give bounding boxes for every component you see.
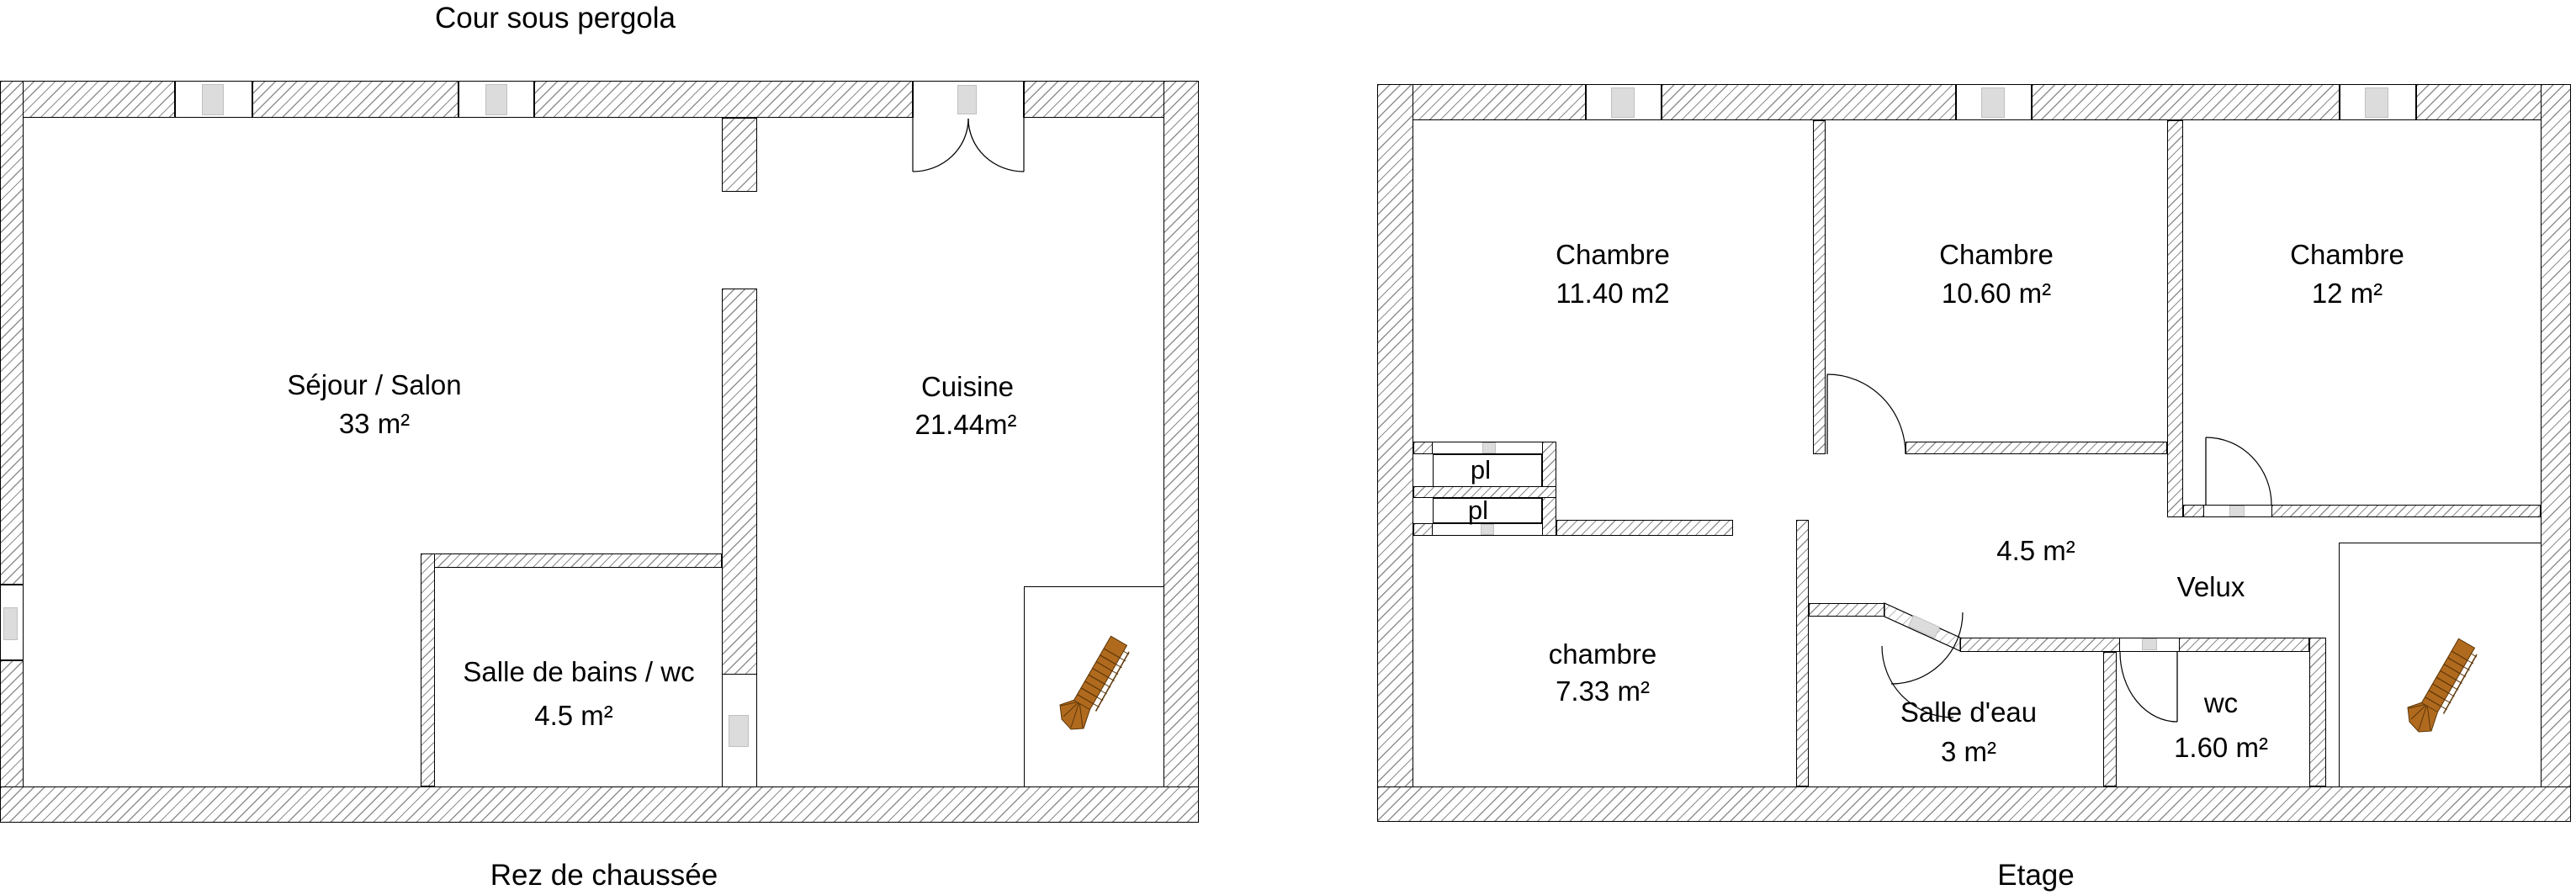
stairwell-enclosure: [1024, 586, 1163, 786]
window-pane-icon: [485, 84, 507, 115]
uf-top-wall: [1662, 84, 1956, 120]
uf-right-wall: [2541, 84, 2571, 822]
uf-ch1-bottom-wall: [1413, 442, 1433, 454]
uf-left-wall: [1377, 84, 1413, 822]
room-label-chambre2: Chambre: [1939, 240, 2054, 270]
closet-bottom-wall: [1413, 523, 1433, 536]
uf-top-wall: [2032, 84, 2340, 120]
room-label-sde: Salle d'eau: [1900, 697, 2037, 728]
room-area-sde: 3 m²: [1941, 737, 1996, 767]
gf-top-wall: [534, 81, 913, 118]
window-pane-icon: [202, 84, 224, 115]
door-leaf-icon: [729, 715, 749, 747]
caption-upper-floor: Etage: [1997, 859, 2074, 892]
uf-wc-right-wall: [2309, 638, 2326, 786]
uf-ch4-top-wall: [1556, 520, 1733, 536]
gf-top-wall: [252, 81, 458, 118]
door-leaf-icon: [2229, 506, 2245, 516]
gf-partition-wall: [722, 289, 757, 675]
room-label-sejour: Séjour / Salon: [287, 370, 461, 400]
uf-bottom-wall: [1377, 786, 2571, 822]
room-area-chambre1: 11.40 m2: [1556, 278, 1669, 309]
door-leaf-icon: [1481, 524, 1494, 535]
uf-ch4-right-wall: [1796, 520, 1809, 786]
uf-partition-ch1-ch2: [1813, 120, 1826, 454]
door-leaf-icon: [957, 85, 977, 114]
closet-label-2: pl: [1468, 496, 1488, 525]
window-pane-icon: [1611, 87, 1635, 118]
gf-left-wall: [0, 81, 24, 585]
room-area-sejour: 33 m²: [339, 409, 410, 439]
door-leaf-icon: [2142, 638, 2157, 650]
uf-wc-top-wall: [2179, 638, 2309, 652]
room-area-chambre4: 7.33 m²: [1556, 676, 1650, 707]
floorplan-page: Cour sous pergola Rez de chaussée Etage: [0, 0, 2576, 895]
gf-right-wall: [1163, 81, 1199, 823]
gf-top-wall: [0, 81, 175, 118]
room-area-wc: 1.60 m²: [2174, 733, 2268, 763]
gf-bottom-wall: [0, 786, 1199, 823]
uf-ch2-bottom-wall: [1905, 442, 2167, 454]
velux-label: Velux: [2177, 572, 2245, 602]
uf-ch3-bottom-wall: [2271, 505, 2541, 517]
uf-sde-topleft-wall: [1809, 603, 1884, 617]
room-label-chambre4: chambre: [1549, 639, 1656, 670]
caption-ground-floor: Rez de chaussée: [490, 859, 718, 892]
caption-courtyard: Cour sous pergola: [435, 2, 676, 35]
door-leaf-icon: [1482, 442, 1496, 453]
room-area-bath: 4.5 m²: [534, 701, 613, 731]
room-label-wc: wc: [2204, 688, 2238, 718]
room-label-chambre1: Chambre: [1556, 240, 1670, 270]
closet-label-1: pl: [1471, 456, 1491, 485]
gf-partition-wall: [722, 118, 757, 192]
door-leaf-icon: [1909, 616, 1940, 638]
bathroom-top-wall: [421, 553, 722, 568]
uf-ch3-bottom-wall: [2183, 505, 2204, 517]
window-pane-icon: [3, 607, 18, 640]
room-area-chambre2: 10.60 m²: [1942, 278, 2051, 309]
room-label-bath: Salle de bains / wc: [463, 657, 694, 687]
stairwell-enclosure: [2339, 543, 2541, 786]
uf-sde-top-wall: [1960, 638, 2120, 652]
diagonal-wall: [1884, 603, 1960, 651]
uf-partition-ch2-ch3: [2167, 120, 2183, 517]
uf-wc-left-wall: [2103, 652, 2117, 786]
room-area-chambre3: 12 m²: [2312, 278, 2383, 309]
window-pane-icon: [1981, 87, 2005, 118]
room-area-cuisine: 21.44m²: [914, 410, 1016, 440]
room-label-chambre3: Chambre: [2290, 240, 2404, 270]
window-pane-icon: [2365, 87, 2388, 118]
room-label-cuisine: Cuisine: [921, 372, 1014, 402]
bathroom-left-wall: [421, 553, 435, 786]
landing-area-label: 4.5 m²: [1996, 536, 2075, 566]
